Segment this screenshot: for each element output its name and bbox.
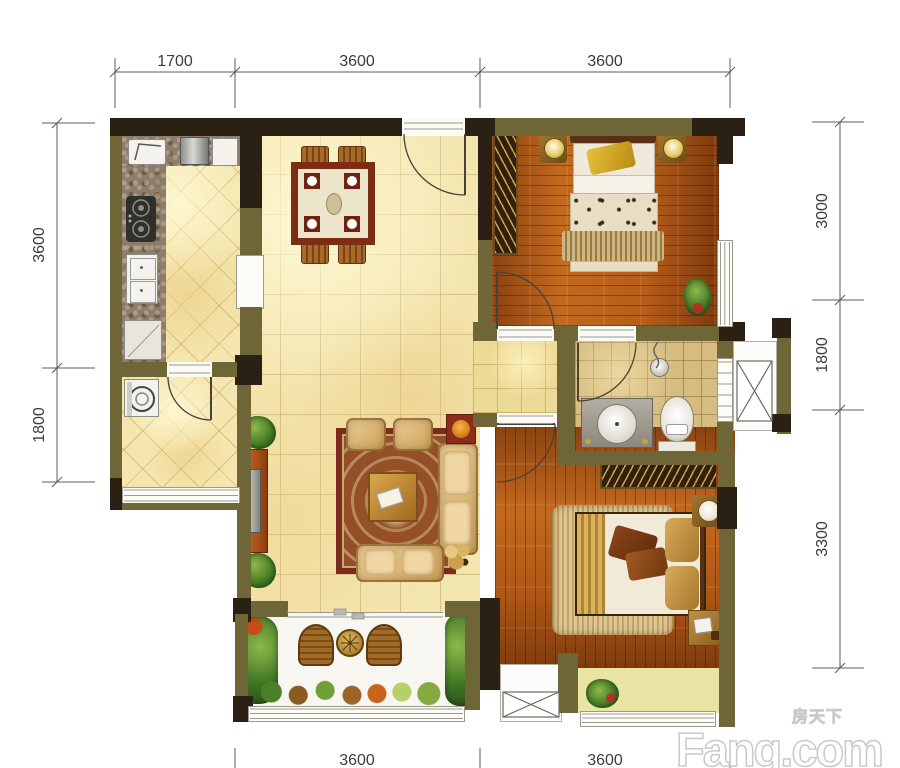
double-sink [126,254,158,304]
balcony-plants-bottom [256,676,448,708]
wall [240,136,262,208]
wall [473,322,497,341]
wall [110,136,122,510]
double-bed [575,512,706,616]
wall [240,208,262,257]
wall [554,326,578,341]
wall [110,118,402,136]
kitchen-appliance [180,137,209,165]
wicker-chair [366,624,402,666]
side-table-lamp [446,414,476,444]
dim-left-1: 3600 [31,227,48,263]
bedroom1-window [717,240,733,327]
wall [719,670,735,727]
bay-plant [586,679,619,708]
wall [692,118,745,136]
wall [717,136,733,164]
wall [772,414,791,432]
wall [772,318,791,338]
shower-head [650,358,669,377]
armchair [346,418,386,451]
balcony-table [336,629,364,657]
wall [122,503,240,510]
wall [110,478,122,510]
bedside-lamp [544,138,565,159]
sofa-right [438,443,478,555]
vanity [581,398,653,448]
dining-table [291,162,375,245]
wall [717,422,733,451]
brown-pillow [625,547,669,582]
watermark: Fang.com 房天下 [676,726,900,768]
kitchen-cabinet-top [212,138,238,166]
watermark-brand: Fang.com [676,723,882,768]
kitchen-sink [128,139,166,165]
round-sink [597,404,637,444]
dim-top-3: 3600 [587,53,623,70]
dried-flowers [441,540,475,574]
laundry-window [122,487,240,504]
dining-chair [301,243,329,264]
textured-throw [562,231,664,261]
wardrobe [493,133,518,255]
washing-machine [124,379,159,417]
wall [558,653,578,713]
wall [480,598,500,690]
laundry-door-opening [167,362,212,377]
wall [212,362,237,377]
kitchen-doorway [236,255,264,309]
dim-right-2: 1800 [814,337,831,373]
wall [235,355,262,385]
toilet [656,394,696,451]
dim-left-2: 1800 [31,407,48,443]
bathroom-vent-window [717,358,733,422]
wall [473,413,497,427]
double-bed [570,131,656,270]
wall [478,118,492,240]
watermark-chinese: 房天下 [792,710,843,726]
wardrobe [600,461,718,489]
wall [495,118,692,136]
floor-plan: 1700 3600 3600 3600 1800 3000 1800 3300 … [0,0,900,768]
wall [248,601,288,617]
dim-bottom-2: 3600 [587,752,623,768]
wicker-chair [298,624,334,666]
bedroom2-door-opening [497,413,555,427]
coffee-table [368,472,418,522]
balcony-window [248,706,465,722]
bedside-lamp [663,138,684,159]
cooktop [126,196,156,242]
entry-opening [402,119,465,135]
wall [122,362,167,377]
sofa-bottom [356,544,444,582]
utility-shaft [733,341,777,431]
wall [717,487,737,529]
dotted-blanket [570,193,658,233]
dim-right-3: 3300 [814,521,831,557]
dim-bottom-1: 3600 [339,752,375,768]
dining-chair [338,243,366,264]
armchair [393,418,433,451]
wall [557,341,575,451]
wall [240,307,262,355]
bathroom-door-opening [578,326,636,341]
bedroom-plant [684,278,711,316]
bedroom1-door-opening [497,326,554,341]
dim-right-1: 3000 [814,193,831,229]
pillow [665,566,699,610]
wall [478,240,492,326]
wall [717,341,733,358]
kitchen-cabinet-low [124,320,162,360]
dim-top-1: 1700 [157,53,193,70]
wall [557,451,735,465]
wall [465,614,480,710]
dim-top-2: 3600 [339,53,375,70]
ac-platform [500,664,562,722]
